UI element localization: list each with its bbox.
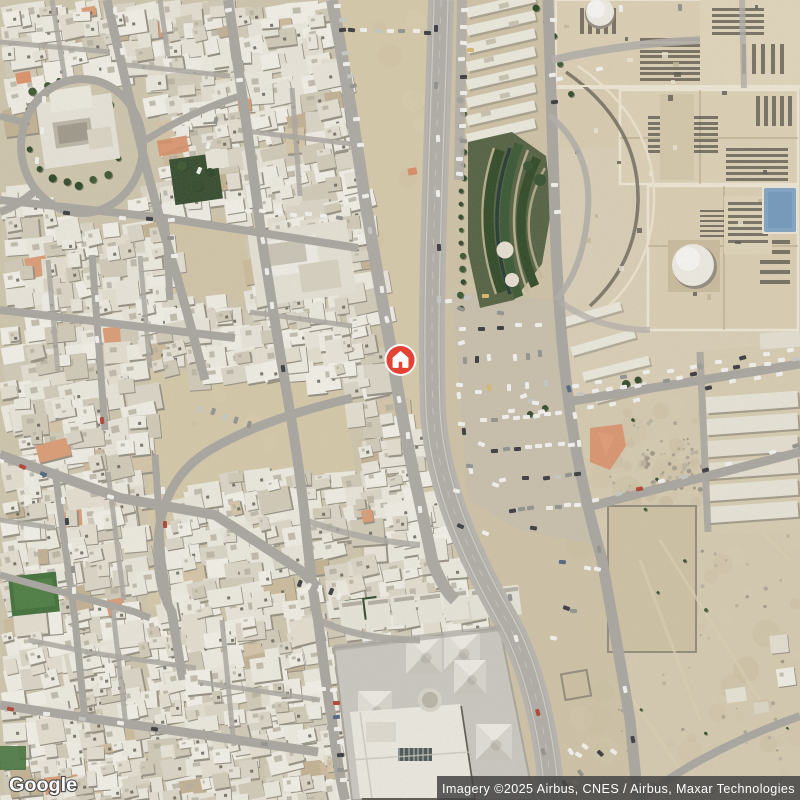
- svg-text:Imagery ©2025 Airbus, CNES / A: Imagery ©2025 Airbus, CNES / Airbus, Max…: [442, 782, 795, 796]
- svg-text:Google: Google: [9, 774, 77, 796]
